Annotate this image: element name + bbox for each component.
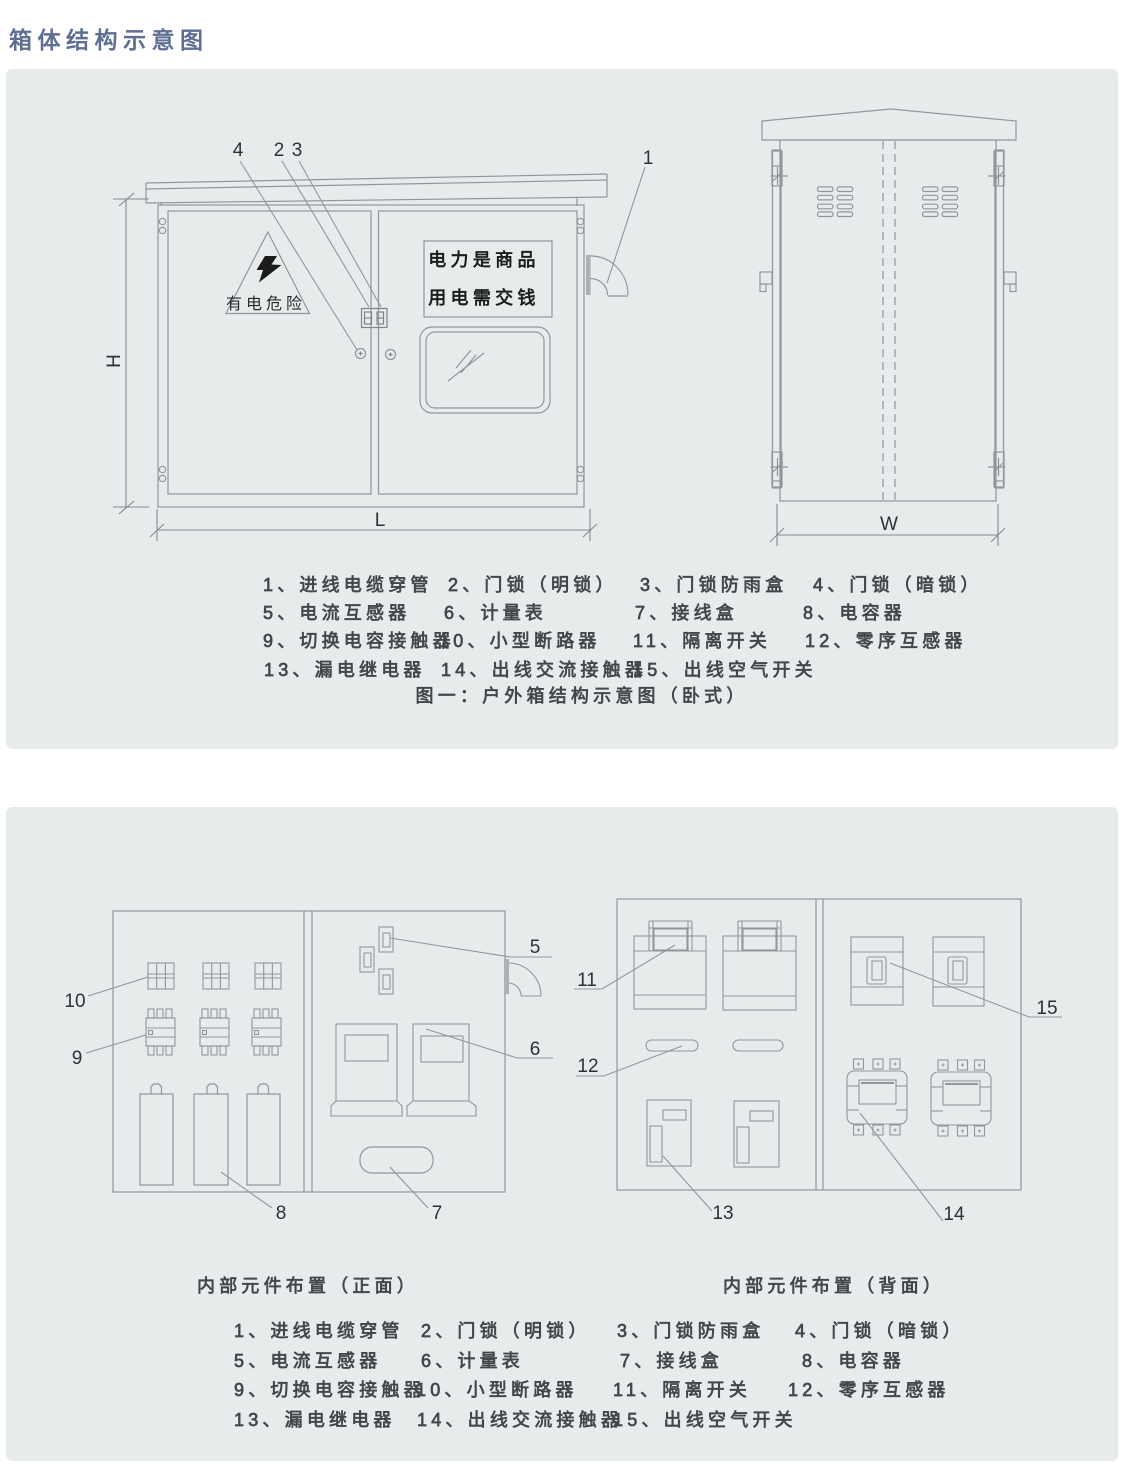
svg-text:W: W bbox=[880, 514, 898, 535]
svg-text:6: 6 bbox=[530, 1039, 541, 1060]
svg-text:8: 8 bbox=[276, 1203, 287, 1224]
svg-text:13: 13 bbox=[712, 1203, 733, 1224]
svg-text:6、计量表: 6、计量表 bbox=[421, 1351, 524, 1371]
svg-text:5、电流互感器: 5、电流互感器 bbox=[234, 1351, 381, 1371]
svg-text:L: L bbox=[375, 510, 386, 531]
svg-text:4、门锁（暗锁）: 4、门锁（暗锁） bbox=[795, 1321, 965, 1341]
svg-text:10、小型断路器: 10、小型断路器 bbox=[416, 1380, 578, 1400]
svg-text:13、漏电继电器: 13、漏电继电器 bbox=[264, 660, 426, 680]
svg-text:有电危险: 有电危险 bbox=[226, 295, 306, 313]
svg-text:3、门锁防雨盒: 3、门锁防雨盒 bbox=[640, 575, 787, 595]
svg-text:9、切换电容接触器: 9、切换电容接触器 bbox=[263, 631, 455, 651]
svg-text:15、出线空气开关: 15、出线空气开关 bbox=[613, 1410, 797, 1430]
svg-text:12: 12 bbox=[577, 1056, 598, 1077]
svg-text:用电需交钱: 用电需交钱 bbox=[428, 287, 540, 308]
svg-text:H: H bbox=[104, 354, 125, 368]
svg-text:4: 4 bbox=[233, 140, 244, 161]
svg-text:3、门锁防雨盒: 3、门锁防雨盒 bbox=[617, 1321, 764, 1341]
svg-text:11: 11 bbox=[577, 970, 597, 991]
svg-text:10: 10 bbox=[64, 991, 85, 1012]
svg-text:2、门锁（明锁）: 2、门锁（明锁） bbox=[421, 1321, 591, 1341]
svg-text:箱体结构示意图: 箱体结构示意图 bbox=[9, 27, 209, 53]
svg-text:8、电容器: 8、电容器 bbox=[803, 603, 906, 623]
svg-text:4、门锁（暗锁）: 4、门锁（暗锁） bbox=[813, 575, 983, 595]
svg-text:9: 9 bbox=[72, 1048, 83, 1069]
svg-text:1、进线电缆穿管: 1、进线电缆穿管 bbox=[263, 575, 433, 595]
svg-text:14: 14 bbox=[943, 1204, 965, 1225]
svg-text:1、进线电缆穿管: 1、进线电缆穿管 bbox=[234, 1321, 404, 1341]
svg-text:7、接线盒: 7、接线盒 bbox=[620, 1351, 723, 1371]
svg-text:9、切换电容接触器: 9、切换电容接触器 bbox=[234, 1380, 426, 1400]
svg-text:2: 2 bbox=[274, 140, 285, 161]
svg-text:13、漏电继电器: 13、漏电继电器 bbox=[234, 1410, 396, 1430]
svg-text:7、接线盒: 7、接线盒 bbox=[635, 603, 738, 623]
svg-text:15、出线空气开关: 15、出线空气开关 bbox=[633, 660, 817, 680]
svg-text:内部元件布置（正面）: 内部元件布置（正面） bbox=[197, 1276, 419, 1296]
svg-text:3: 3 bbox=[292, 140, 303, 161]
svg-text:8、电容器: 8、电容器 bbox=[802, 1351, 905, 1371]
svg-text:6、计量表: 6、计量表 bbox=[444, 603, 547, 623]
svg-text:14、出线交流接触器: 14、出线交流接触器 bbox=[417, 1410, 623, 1430]
svg-text:图一：户外箱结构示意图（卧式）: 图一：户外箱结构示意图（卧式） bbox=[416, 686, 749, 706]
svg-text:15: 15 bbox=[1036, 998, 1057, 1019]
svg-text:14、出线交流接触器: 14、出线交流接触器 bbox=[441, 660, 647, 680]
svg-text:12、零序互感器: 12、零序互感器 bbox=[805, 631, 967, 651]
svg-text:10、小型断路器: 10、小型断路器 bbox=[439, 631, 601, 651]
svg-text:12、零序互感器: 12、零序互感器 bbox=[788, 1380, 950, 1400]
svg-text:内部元件布置（背面）: 内部元件布置（背面） bbox=[723, 1276, 945, 1296]
svg-text:7: 7 bbox=[432, 1203, 443, 1224]
svg-text:电力是商品: 电力是商品 bbox=[428, 249, 540, 270]
svg-text:11、隔离开关: 11、隔离开关 bbox=[613, 1380, 751, 1400]
svg-text:1: 1 bbox=[643, 148, 654, 169]
svg-text:11、隔离开关: 11、隔离开关 bbox=[633, 631, 771, 651]
svg-text:5: 5 bbox=[530, 937, 541, 958]
svg-text:2、门锁（明锁）: 2、门锁（明锁） bbox=[448, 575, 618, 595]
svg-text:5、电流互感器: 5、电流互感器 bbox=[263, 603, 410, 623]
